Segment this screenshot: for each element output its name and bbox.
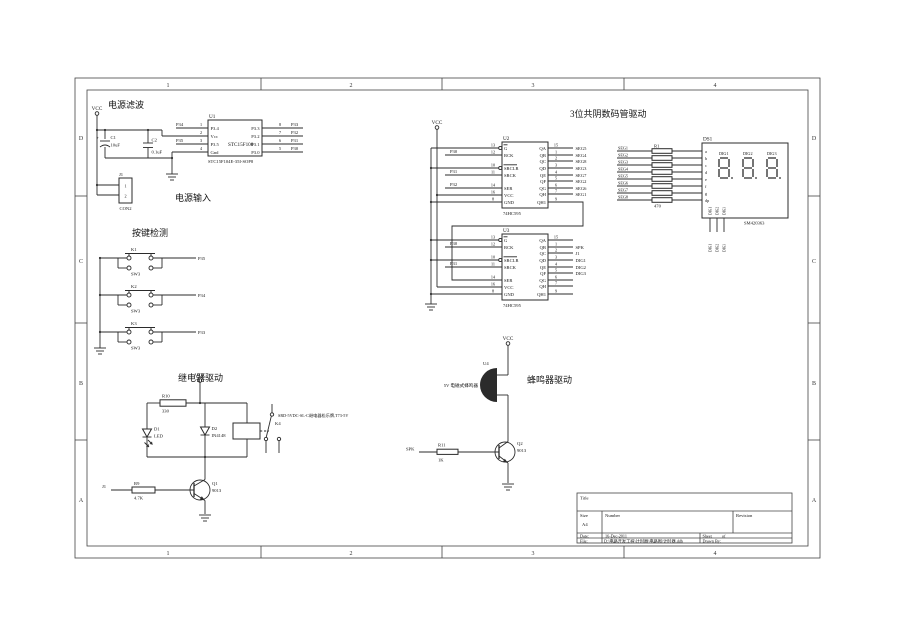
display-driver-section: 3位共阴数码管驱动 VCC U2 74HC595 13 12 10 11 <box>425 108 788 310</box>
net-label: P30 <box>450 149 458 154</box>
pin-name: dp <box>705 198 709 203</box>
pin-name: DIG1 <box>709 207 713 215</box>
frame-col-label: 2 <box>350 83 353 89</box>
gnd-symbol <box>199 515 211 521</box>
net-label: P30 <box>450 241 458 246</box>
pin-name: a <box>705 149 707 154</box>
frame-row-label: D <box>79 136 84 142</box>
pin-name: P3.5 <box>211 142 220 147</box>
ref-des: U2 <box>503 136 510 142</box>
chip-name: STC15F100 <box>228 142 254 148</box>
seven-segment-digit <box>743 158 757 179</box>
titleblock-size-label: Size <box>580 513 588 518</box>
section-title: 按键检测 <box>132 227 168 238</box>
svg-text:+: + <box>97 135 100 140</box>
pin-number: 3 <box>555 163 557 168</box>
frame-row-label: A <box>812 498 817 504</box>
section-title: 3位共阴数码管驱动 <box>570 108 647 119</box>
titleblock-title-label: Title <box>580 496 589 501</box>
value: 0.1uF <box>152 150 163 155</box>
pin-number: 2 <box>200 130 202 135</box>
ref-des: Q1 <box>212 481 218 486</box>
pin-number: 6 <box>279 138 281 143</box>
net-label: SEG7 <box>618 188 628 193</box>
pin-number: 13 <box>491 235 495 240</box>
pin-name: SRCK <box>504 265 517 270</box>
frame-row-label: A <box>79 498 84 504</box>
switch-k1: K1 SW3 P35 <box>99 247 206 277</box>
wires-buzzer <box>497 345 508 441</box>
titleblock-file-label: File: <box>580 538 588 543</box>
ref-des: R9 <box>134 481 140 486</box>
pin-number: 6 <box>555 183 557 188</box>
pin-number: 2 <box>555 156 557 161</box>
net-label: P31 <box>450 169 458 174</box>
frame-row-label: C <box>79 259 83 265</box>
pin-name: Gnd <box>211 150 220 155</box>
pin-name: QD <box>539 258 546 263</box>
net-label: SEG3 <box>576 166 588 171</box>
switch-k2: K2 SW3 P34 <box>99 284 206 314</box>
ref-des: K1 <box>131 247 137 252</box>
pin-number: 16 <box>491 190 495 195</box>
title-block: Title Size A4 Number Revision Date: 16-D… <box>577 493 792 544</box>
pin-number: 14 <box>491 275 496 280</box>
pin-number: 9 <box>555 197 557 202</box>
pin-number: 8 <box>492 197 494 202</box>
pin-name: QA <box>539 146 546 151</box>
net-label: SPK <box>576 245 585 250</box>
ref-des: K4 <box>275 421 281 426</box>
section-title: 蜂鸣器驱动 <box>527 374 572 385</box>
relay-driver-section: 继电器驱动 VCC R10 330 D1 LED D2 IN4148 <box>102 372 348 521</box>
key-detect-section: 按键检测 K1 SW3 P35 K2 SW3 P34 <box>94 227 206 354</box>
pin-name: SER <box>504 186 513 191</box>
part-number: 74HC595 <box>503 303 522 308</box>
component-note: 5V 电磁式蜂鸣器 <box>444 382 479 389</box>
ref-des: R10 <box>162 394 170 399</box>
ref-des: R1 <box>654 144 660 149</box>
pin-number: 4 <box>200 146 203 151</box>
titleblock-size-value: A4 <box>582 522 588 527</box>
pin-name: QF <box>540 271 546 276</box>
pin-name: P3.1 <box>251 142 260 147</box>
titleblock-file-value: D:\电路开发工程\计时器\电路图\计时器.ddb <box>604 537 683 544</box>
u4-buzzer: U4 5V 电磁式蜂鸣器 <box>444 361 497 402</box>
net-label: SEG5 <box>618 174 628 179</box>
net-label: SEG3 <box>618 160 628 165</box>
pin-name: d <box>705 170 708 175</box>
pin-number: 1 <box>124 184 126 189</box>
sheet-border: 1 2 3 4 1 2 3 4 D C B A D C B A <box>75 78 820 558</box>
pin-name: SRCLR <box>504 166 519 171</box>
net-label: J1 <box>576 251 581 256</box>
pin-name: QG <box>539 186 546 191</box>
gnd-symbol <box>425 304 437 310</box>
pin-name: GND <box>504 200 515 205</box>
d1-led: D1 LED <box>143 427 164 448</box>
titleblock-of-label: of <box>722 533 726 538</box>
ref-des: U1 <box>209 114 216 120</box>
net-label: P33 <box>198 330 206 335</box>
seven-segment-digit <box>767 158 781 179</box>
pin-number: 11 <box>491 170 495 175</box>
r1-resistor-network: R1 470 SEG1 SEG2 SEG3 SEG4 SEG5 SEG6 SEG… <box>617 144 702 209</box>
component-note: SRD-5VDC-SL-C继电器松乐牌,T73-5V <box>278 412 348 419</box>
net-label: P34 <box>176 122 184 127</box>
value: 4.7K <box>134 496 144 501</box>
u1-mcu: U1 STC15F104E-35I-SOP8 STC15F100 1 2 3 4… <box>196 114 303 164</box>
pin-number: 3 <box>555 255 557 260</box>
ref-des: J1 <box>119 172 124 177</box>
pin-number: 5 <box>555 176 557 181</box>
pin-name: b <box>705 156 707 161</box>
part-number: SW3 <box>131 309 141 314</box>
digit-label: DIG3 <box>767 151 777 156</box>
frame-col-label: 1 <box>167 551 170 557</box>
net-label: P32 <box>450 182 458 187</box>
ref-des: D2 <box>212 426 218 431</box>
pin-number: 2 <box>124 194 126 199</box>
ref-des: Q2 <box>517 441 523 446</box>
pin-number: 8 <box>279 122 281 127</box>
pin-number: 3 <box>200 138 202 143</box>
frame-col-label: 3 <box>532 551 535 557</box>
value: IN4148 <box>212 433 227 438</box>
pin-name: RCK <box>504 153 514 158</box>
pin-name: GND <box>504 292 515 297</box>
pin-name: f <box>705 184 707 189</box>
pin-number: 10 <box>491 255 495 260</box>
q1-transistor: Q1 9013 <box>190 480 222 515</box>
digit-label: DIG1 <box>719 151 729 156</box>
net-label: J1 <box>102 484 107 489</box>
value: 330 <box>162 409 170 414</box>
pin-number: 10 <box>491 163 495 168</box>
gnd-symbol <box>94 348 106 354</box>
gnd-symbol <box>502 484 514 490</box>
part-number: SM420363 <box>744 221 765 226</box>
ref-des: R11 <box>438 443 446 448</box>
net-label: SEG7 <box>576 173 588 178</box>
pin-number: 9 <box>555 289 557 294</box>
section-title: 电源滤波 <box>108 99 144 110</box>
net-label: SEG8 <box>618 195 628 200</box>
value: 470 <box>654 204 662 209</box>
net-label: P34 <box>198 293 206 298</box>
pin-name: QH <box>539 284 546 289</box>
pin-name: QE <box>540 173 546 178</box>
r9-resistor: J1 R9 4.7K <box>102 481 194 501</box>
pin-number: 7 <box>555 189 557 194</box>
pin-name: e <box>705 177 707 182</box>
pin-number: 13 <box>491 143 495 148</box>
pin-name: QG <box>539 278 546 283</box>
c1-capacitor: + C1 10uF <box>97 135 121 148</box>
r10-resistor: R10 330 <box>160 394 186 414</box>
switch-k3: K3 SW3 P33 <box>99 321 206 351</box>
ref-des: K3 <box>131 321 137 326</box>
pin-number: 1 <box>555 242 557 247</box>
pin-name: QB <box>540 153 546 158</box>
schematic-sheet: 1 2 3 4 1 2 3 4 D C B A D C B A 电源滤波 VCC <box>0 0 900 636</box>
pin-number: 1 <box>200 122 202 127</box>
ref-des: D1 <box>154 427 160 432</box>
net-label: DIG3 <box>723 244 727 252</box>
pin-name: QH1 <box>537 200 547 205</box>
seven-segment-digit <box>719 158 733 179</box>
d2-diode: D2 IN4148 <box>201 426 227 438</box>
pin-name: QC <box>540 251 546 256</box>
net-label: DIG2 <box>716 244 720 252</box>
net-label: P35 <box>198 256 206 261</box>
titleblock-number-label: Number <box>605 513 621 518</box>
value: 9013 <box>212 488 222 493</box>
pin-name: P3.2 <box>251 134 260 139</box>
value: 9013 <box>517 448 527 453</box>
net-label: DIG2 <box>576 265 587 270</box>
pin-number: 15 <box>554 143 558 148</box>
net-label: SEG2 <box>618 153 628 158</box>
j1-connector: J1 1 2 CON2 <box>119 172 132 211</box>
r11-resistor: SPK R11 1K <box>406 443 499 463</box>
pin-name: QA <box>539 238 546 243</box>
pin-number: 16 <box>491 282 495 287</box>
pin-name: QC <box>540 159 546 164</box>
section-title: 电源输入 <box>175 192 211 203</box>
net-label: SEG1 <box>576 192 588 197</box>
pin-name: RCK <box>504 245 514 250</box>
pin-name: SRCLR <box>504 258 519 263</box>
net-label: SEG8 <box>576 159 588 164</box>
pin-number: 12 <box>491 150 495 155</box>
pin-number: 6 <box>555 275 557 280</box>
part-number: CON2 <box>120 206 133 211</box>
wires-power <box>96 115 208 195</box>
part-number: STC15F104E-35I-SOP8 <box>208 159 254 164</box>
pin-name: QF <box>540 179 546 184</box>
svg-text:VCC: VCC <box>92 106 103 112</box>
c2-capacitor: C2 0.1uF <box>143 138 163 155</box>
pin-name: VCC <box>504 285 513 290</box>
net-label: P31 <box>450 261 458 266</box>
pin-name: DIG2 <box>716 207 720 215</box>
pin-number: 1 <box>555 150 557 155</box>
value: 1K <box>438 458 444 463</box>
net-label: SEG6 <box>576 186 588 191</box>
schematic-canvas: 1 2 3 4 1 2 3 4 D C B A D C B A 电源滤波 VCC <box>0 0 900 636</box>
pin-name: P3.4 <box>211 126 220 131</box>
net-label: SEG2 <box>576 179 588 184</box>
svg-text:VCC: VCC <box>503 336 514 342</box>
pin-name: P3.0 <box>251 150 260 155</box>
ref-des: U3 <box>503 228 510 234</box>
pin-number: 7 <box>555 281 557 286</box>
ds1-display: DS1 SM420363 a b c d e f g dp DIG1 DIG2 … <box>702 137 788 253</box>
pin-name: G <box>504 146 508 151</box>
gnd-symbol <box>166 174 178 180</box>
value: 10uF <box>111 143 121 148</box>
net-label: P33 <box>291 122 299 127</box>
frame-col-label: 4 <box>714 83 717 89</box>
pin-number: 7 <box>279 130 281 135</box>
frame-col-label: 2 <box>350 551 353 557</box>
net-label: P30 <box>291 146 299 151</box>
net-label: P35 <box>176 138 184 143</box>
pin-name: QH1 <box>537 292 547 297</box>
pin-name: QE <box>540 265 546 270</box>
pin-number: 15 <box>554 235 558 240</box>
k4-relay: K4 SRD-5VDC-SL-C继电器松乐牌,T73-5V <box>233 404 348 453</box>
pin-name: QD <box>539 166 546 171</box>
ref-des: K2 <box>131 284 137 289</box>
frame-row-label: B <box>79 381 83 387</box>
frame-col-label: 3 <box>532 83 535 89</box>
frame-row-label: B <box>812 381 816 387</box>
digit-label: DIG2 <box>743 151 753 156</box>
net-label: DIG3 <box>576 271 587 276</box>
net-label: SEG1 <box>618 146 628 151</box>
pin-number: 12 <box>491 242 495 247</box>
vcc-symbol: VCC <box>432 120 443 129</box>
value: LED <box>154 434 164 439</box>
vcc-symbol: VCC <box>92 106 103 115</box>
net-label: SEG6 <box>618 181 628 186</box>
pin-number: 5 <box>279 146 281 151</box>
pin-number: 4 <box>555 170 558 175</box>
ref-des: C1 <box>111 135 117 140</box>
pin-name: QH <box>539 192 546 197</box>
part-number: SW3 <box>131 346 141 351</box>
net-label: P32 <box>291 130 299 135</box>
titleblock-drawn-label: Drawn By: <box>703 538 722 543</box>
pin-name: G <box>504 238 508 243</box>
svg-text:VCC: VCC <box>432 120 443 126</box>
net-label: P31 <box>291 138 299 143</box>
pin-name: VCC <box>504 193 513 198</box>
ref-des: U4 <box>483 361 489 366</box>
frame-row-label: D <box>812 136 817 142</box>
pin-name: SRCK <box>504 173 517 178</box>
net-label: SEG4 <box>618 167 629 172</box>
pin-number: 4 <box>555 262 558 267</box>
part-number: 74HC595 <box>503 211 522 216</box>
frame-col-label: 4 <box>714 551 717 557</box>
pin-name: g <box>705 191 708 196</box>
pin-name: DIG3 <box>723 207 727 215</box>
net-label: SEG4 <box>576 153 588 158</box>
pin-number: 11 <box>491 262 495 267</box>
titleblock-revision-label: Revision <box>736 513 753 518</box>
power-filter-section: 电源滤波 VCC + C1 10uF C2 0.1uF P34 <box>92 99 303 211</box>
pin-name: P3.3 <box>251 126 260 131</box>
net-label: DIG1 <box>709 244 713 252</box>
pin-number: 5 <box>555 268 557 273</box>
pin-name: QB <box>540 245 546 250</box>
pin-name: c <box>705 163 707 168</box>
q2-transistor: Q2 9013 <box>495 441 527 483</box>
frame-col-label: 1 <box>167 83 170 89</box>
svg-text:VCC: VCC <box>195 373 206 379</box>
ref-des: C2 <box>152 138 158 143</box>
net-label: SEG5 <box>576 146 588 151</box>
pin-name: SER <box>504 278 513 283</box>
buzzer-driver-section: 蜂鸣器驱动 VCC U4 5V 电磁式蜂鸣器 Q2 9013 SPK R11 1… <box>406 336 572 490</box>
vcc-symbol: VCC <box>503 336 514 345</box>
net-label: DIG1 <box>576 258 587 263</box>
net-label: SPK <box>406 447 415 452</box>
ref-des: DS1 <box>703 137 713 143</box>
frame-row-label: C <box>812 259 816 265</box>
part-number: SW3 <box>131 272 141 277</box>
pin-number: 14 <box>491 183 496 188</box>
pin-number: 2 <box>555 248 557 253</box>
pin-name: Vcc <box>211 134 218 139</box>
pin-number: 8 <box>492 289 494 294</box>
